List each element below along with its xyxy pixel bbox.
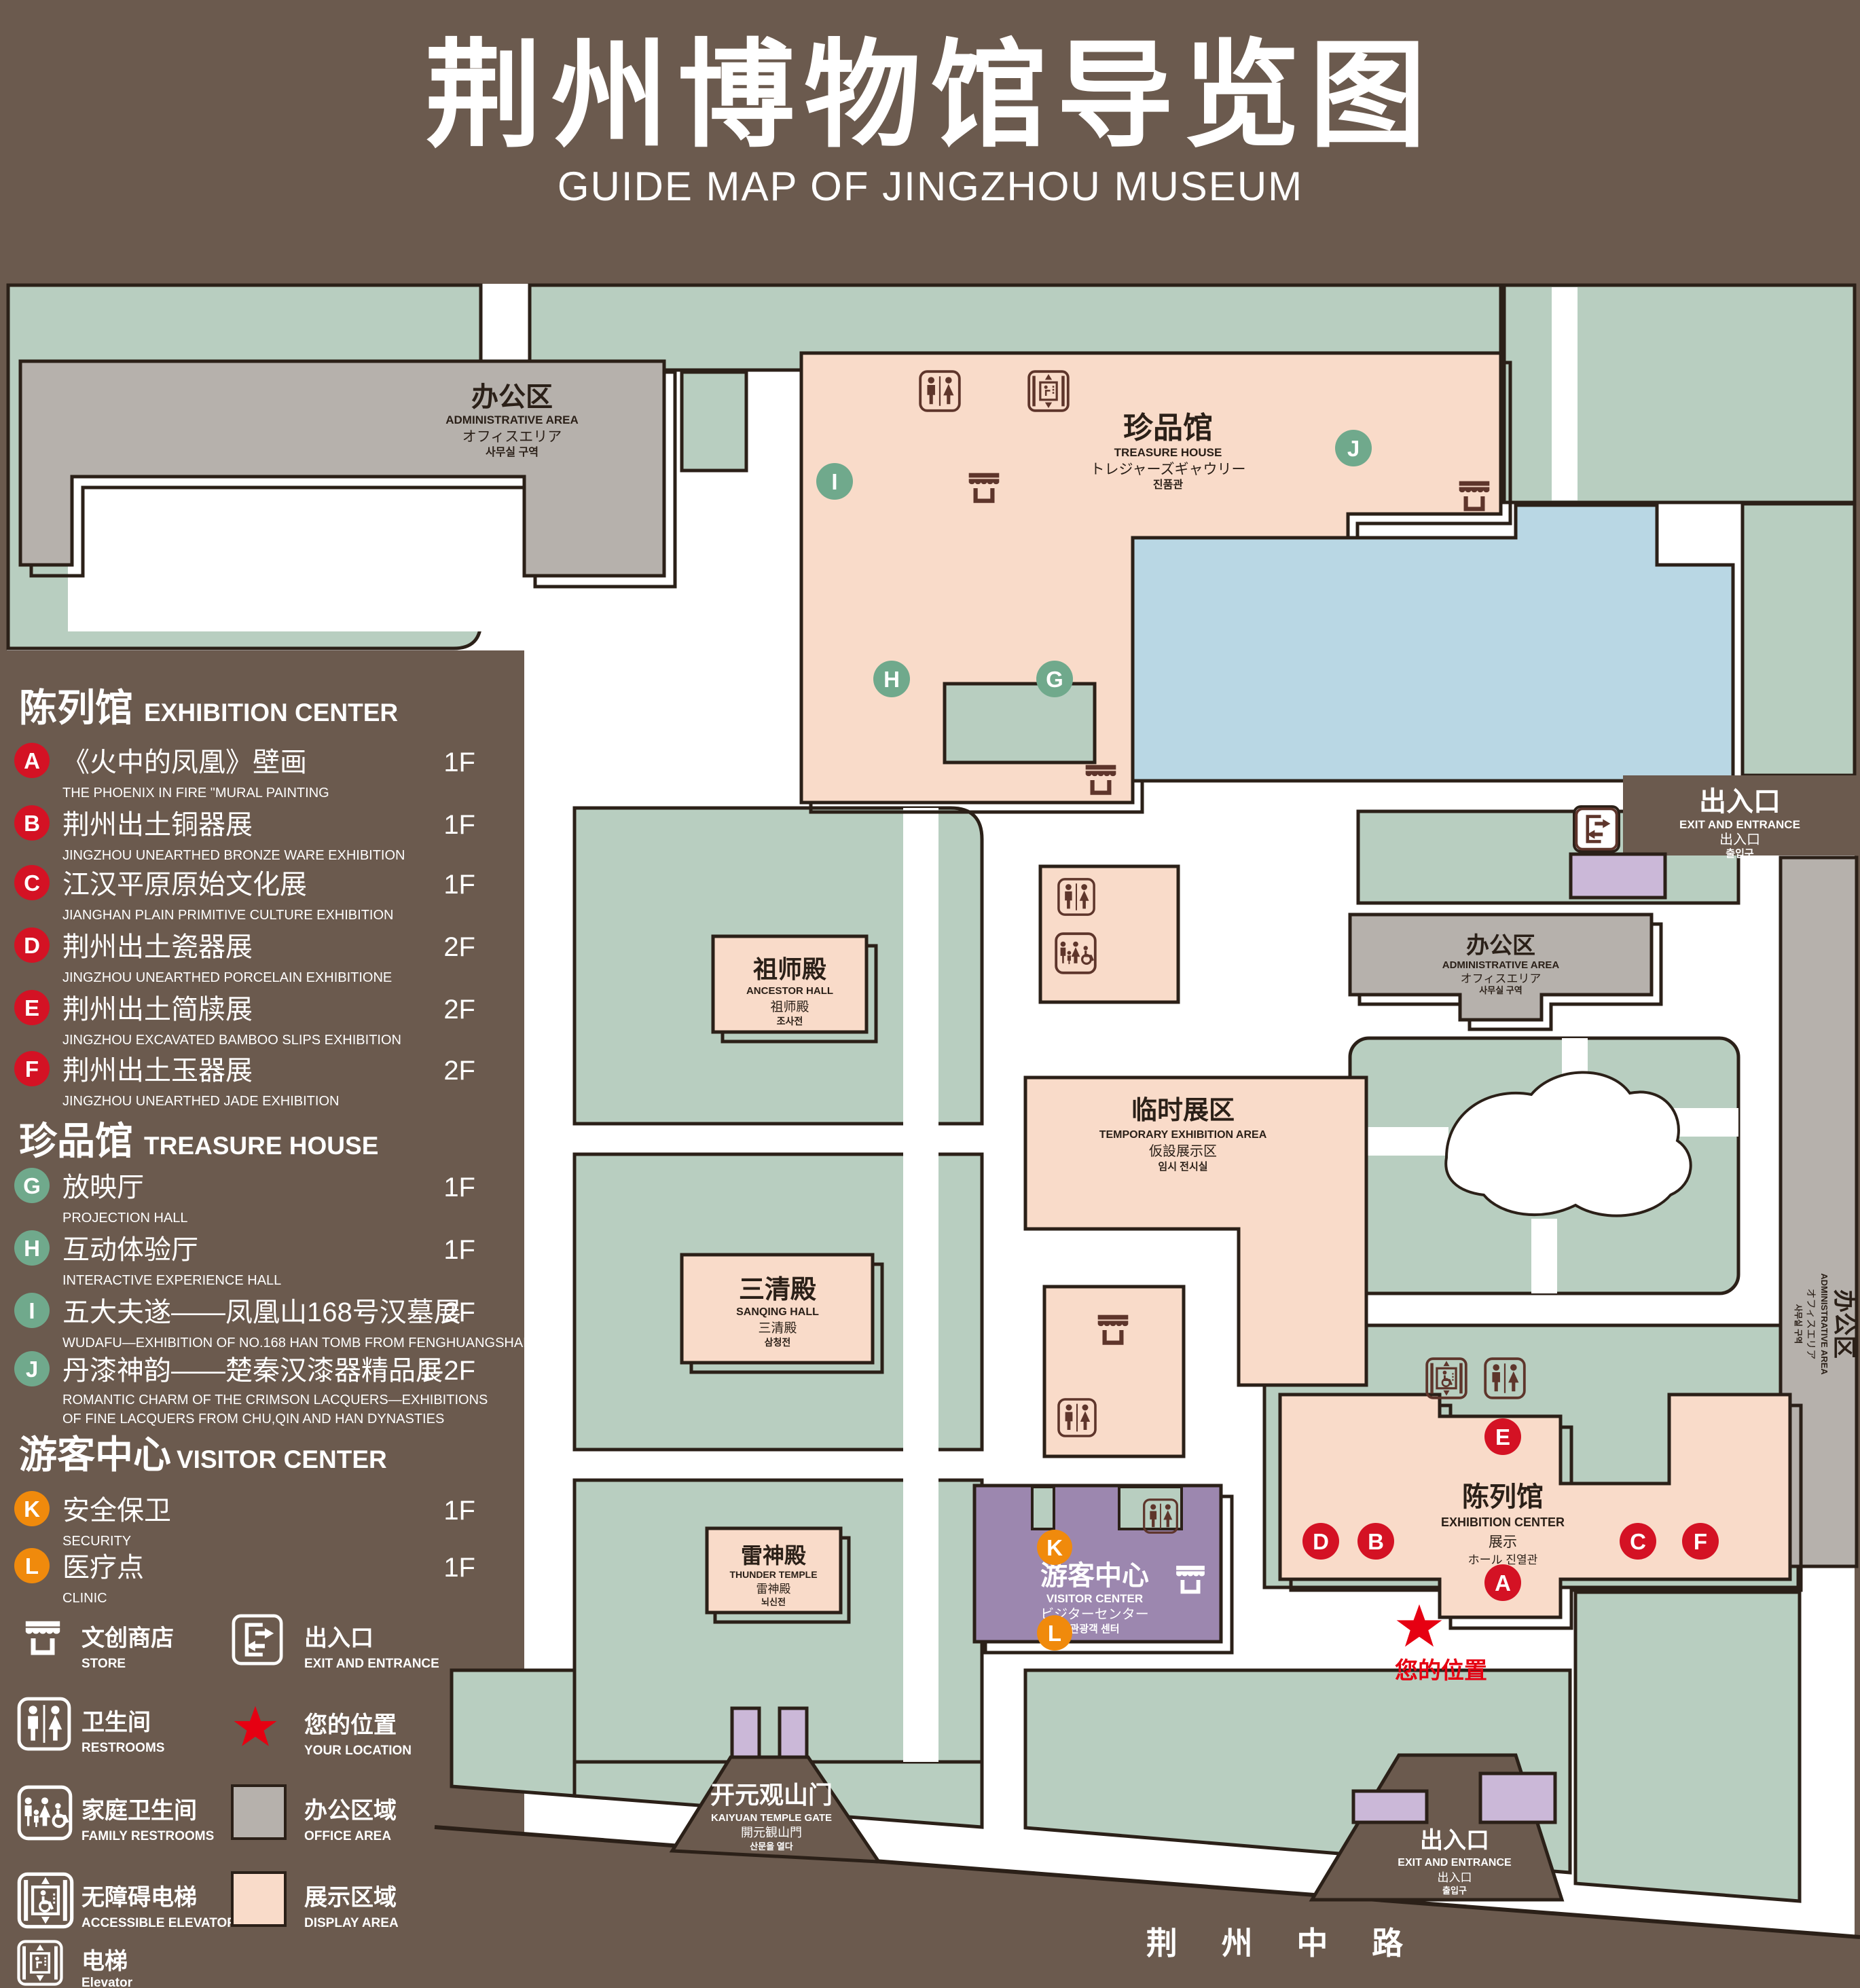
svg-text:B: B [1368, 1529, 1384, 1554]
sanqing-label-zh: 三清殿 [739, 1276, 816, 1304]
svg-text:WUDAFU—EXHIBITION OF NO.168 HA: WUDAFU—EXHIBITION OF NO.168 HAN TOMB FRO… [62, 1336, 533, 1350]
gate-pillar [732, 1708, 759, 1757]
legend-item-B: B 荆州出土铜器展 JINGZHOU UNEARTHED BRONZE WARE… [14, 805, 475, 863]
svg-text:F: F [25, 1056, 39, 1082]
svg-text:荆州出土瓷器展: 荆州出土瓷器展 [62, 932, 253, 962]
your-location-label: 您的位置 [1395, 1658, 1487, 1684]
svg-text:I: I [29, 1298, 35, 1323]
svg-text:2F: 2F [443, 995, 475, 1025]
svg-text:JINGZHOU EXCAVATED BAMBOO SLIP: JINGZHOU EXCAVATED BAMBOO SLIPS EXHIBITI… [62, 1033, 401, 1048]
svg-text:PROJECTION HALL: PROJECTION HALL [62, 1211, 187, 1226]
marker-A: A [1484, 1564, 1521, 1601]
legend-symbol-exit: 出入口 EXIT AND ENTRANCE [234, 1616, 439, 1671]
svg-text:THE PHOENIX IN FIRE "MURAL PAI: THE PHOENIX IN FIRE "MURAL PAINTING [62, 786, 329, 800]
svg-text:安全保卫: 安全保卫 [62, 1496, 171, 1526]
temporary-label-jp: 仮設展示区 [1149, 1143, 1217, 1159]
marker-L: L [1037, 1615, 1072, 1651]
svg-text:1F: 1F [443, 1235, 475, 1265]
sanqing-label-en: SANQING HALL [736, 1306, 819, 1318]
svg-text:放映厅: 放映厅 [62, 1173, 144, 1202]
svg-text:1F: 1F [443, 1173, 475, 1202]
admin-strip-label-zh: 办公区 [1831, 1289, 1857, 1359]
legend-section-treasure-en: TREASURE HOUSE [144, 1132, 378, 1160]
legend-symbol-elevator: 电梯 Elevator [19, 1942, 133, 1988]
treasure-label-zh: 珍品馆 [1123, 411, 1213, 445]
your-location-star-icon [234, 1706, 276, 1746]
svg-text:FAMILY RESTROOMS: FAMILY RESTROOMS [81, 1829, 214, 1843]
legend-item-I: I 五大夫遂——凤凰山168号汉墓展 WUDAFU—EXHIBITION OF … [14, 1293, 533, 1350]
admin-top-label-jp: オフィスエリア [462, 429, 562, 445]
legend-symbol-your-location: 您的位置 YOUR LOCATION [234, 1706, 412, 1758]
temporary-label-en: TEMPORARY EXHIBITION AREA [1099, 1129, 1267, 1141]
sanqing-label-kr: 삼청전 [765, 1337, 791, 1348]
svg-text:1-2F: 1-2F [420, 1356, 475, 1386]
marker-H: H [873, 661, 910, 697]
svg-text:G: G [23, 1173, 41, 1198]
lake [1133, 505, 1733, 781]
svg-text:RESTROOMS: RESTROOMS [81, 1741, 164, 1755]
svg-text:DISPLAY AREA: DISPLAY AREA [304, 1916, 399, 1930]
svg-text:电梯: 电梯 [81, 1949, 128, 1974]
svg-text:1F: 1F [443, 1496, 475, 1526]
legend-item-C: C 江汉平原原始文化展 JIANGHAN PLAIN PRIMITIVE CUL… [14, 865, 475, 923]
svg-text:《火中的凤凰》壁画: 《火中的凤凰》壁画 [62, 748, 307, 777]
svg-text:1F: 1F [443, 1553, 475, 1583]
legend-item-K: K 安全保卫 SECURITY 1F [14, 1491, 475, 1549]
legend-section-visitor-zh: 游客中心 [19, 1433, 171, 1476]
visitor-label-en: VISITOR CENTER [1046, 1592, 1143, 1605]
temporary-label-zh: 临时展区 [1131, 1097, 1235, 1125]
svg-text:展示区域: 展示区域 [304, 1885, 397, 1911]
svg-text:JIANGHAN PLAIN PRIMITIVE CULTU: JIANGHAN PLAIN PRIMITIVE CULTURE EXHIBIT… [62, 908, 393, 923]
courtyard-top-left [68, 468, 530, 631]
admin-top-label-en: ADMINISTRATIVE AREA [445, 413, 579, 426]
svg-text:Elevator: Elevator [81, 1976, 133, 1988]
treasure-label-kr: 진품관 [1153, 479, 1183, 491]
svg-text:丹漆神韵——楚秦汉漆器精品展: 丹漆神韵——楚秦汉漆器精品展 [62, 1356, 443, 1386]
svg-text:荆州出土简牍展: 荆州出土简牍展 [62, 995, 253, 1025]
ancestor-label-en: ANCESTOR HALL [746, 985, 833, 997]
ground-right-column [1743, 504, 1855, 775]
svg-text:JINGZHOU UNEARTHED JADE EXHIBI: JINGZHOU UNEARTHED JADE EXHIBITION [62, 1094, 339, 1109]
svg-text:2F: 2F [443, 1297, 475, 1327]
svg-text:荆州出土铜器展: 荆州出土铜器展 [62, 810, 253, 840]
svg-text:EXIT AND ENTRANCE: EXIT AND ENTRANCE [304, 1657, 439, 1671]
svg-text:J: J [26, 1357, 38, 1382]
exit-bottom-label-zh: 出入口 [1420, 1828, 1489, 1854]
sanqing-hall: 三清殿 SANQING HALL 三清殿 삼청전 [682, 1255, 882, 1372]
svg-text:D: D [1313, 1529, 1329, 1554]
legend-item-L: L 医疗点 CLINIC 1F [14, 1548, 475, 1606]
marker-F: F [1682, 1523, 1719, 1560]
ground-bottom-west [452, 1670, 575, 1796]
legend-item-A: A 《火中的凤凰》壁画 THE PHOENIX IN FIRE "MURAL P… [14, 743, 475, 800]
svg-text:STORE: STORE [81, 1657, 126, 1671]
exhibition-label-zh: 陈列馆 [1462, 1482, 1544, 1512]
sanqing-label-jp: 三清殿 [758, 1321, 797, 1336]
svg-text:互动体验厅: 互动体验厅 [62, 1235, 198, 1265]
svg-text:办公区域: 办公区域 [304, 1798, 397, 1824]
central-restroom-block [1040, 866, 1178, 1002]
admin-right-label-jp: オフィスエリア [1461, 972, 1542, 985]
marker-E: E [1484, 1418, 1521, 1455]
visitor-label-kr: 관광객 센터 [1070, 1623, 1119, 1635]
marker-D: D [1302, 1523, 1339, 1560]
marker-K: K [1037, 1530, 1072, 1565]
legend-item-F: F 荆州出土玉器展 JINGZHOU UNEARTHED JADE EXHIBI… [14, 1051, 475, 1109]
admin-right-label-zh: 办公区 [1466, 933, 1535, 959]
road-label: 荆 州 中 路 [1146, 1926, 1421, 1961]
ground-small-block [682, 372, 746, 471]
exit-top-label-kr: 출입구 [1726, 848, 1754, 860]
exit-bottom-label-kr: 출입구 [1442, 1885, 1467, 1896]
svg-text:2F: 2F [443, 1056, 475, 1086]
page-title-en: GUIDE MAP OF JINGZHOU MUSEUM [558, 164, 1303, 209]
marker-I: I [816, 463, 853, 500]
svg-text:F: F [1694, 1529, 1707, 1554]
svg-text:YOUR LOCATION: YOUR LOCATION [304, 1744, 412, 1758]
ancestor-label-jp: 祖师殿 [770, 999, 809, 1014]
admin-strip-label-kr: 사무실 구역 [1793, 1304, 1804, 1344]
ground-bottom-right [1575, 1592, 1800, 1901]
thunder-label-kr: 뇌신전 [761, 1597, 786, 1607]
svg-text:K: K [1046, 1535, 1063, 1560]
svg-text:ROMANTIC CHARM OF THE CRIMSON: ROMANTIC CHARM OF THE CRIMSON LACQUERS—E… [62, 1393, 488, 1407]
legend-symbol-accessible-elevator: 无障碍电梯 ACCESSIBLE ELEVATOR [19, 1874, 236, 1930]
legend-symbol-store: 文创商店 STORE [26, 1621, 174, 1671]
legend-item-D: D 荆州出土瓷器展 JINGZHOU UNEARTHED PORCELAIN E… [14, 927, 475, 985]
legend-section-exhibition-zh: 陈列馆 [19, 686, 133, 729]
accessible-elevator-icon [1427, 1359, 1466, 1398]
legend-swatch-display-area: 展示区域 DISPLAY AREA [232, 1873, 399, 1930]
legend-item-E: E 荆州出土简牍展 JINGZHOU EXCAVATED BAMBOO SLIP… [14, 990, 475, 1048]
ancestor-label-zh: 祖师殿 [753, 955, 826, 983]
legend-item-J: J 丹漆神韵——楚秦汉漆器精品展 ROMANTIC CHARM OF THE C… [14, 1351, 488, 1426]
visitor-center-building: 游客中心 VISITOR CENTER ビジターセンター 관광객 센터 [974, 1486, 1232, 1653]
svg-text:I: I [831, 469, 837, 494]
treasure-label-en: TREASURE HOUSE [1114, 446, 1222, 459]
svg-text:出入口: 出入口 [304, 1625, 373, 1651]
marker-C: C [1620, 1523, 1656, 1560]
guide-map-poster: 荆州博物馆导览图 GUIDE MAP OF JINGZHOU MUSEUM [0, 0, 1860, 1988]
svg-text:A: A [24, 748, 40, 773]
svg-text:CLINIC: CLINIC [62, 1591, 107, 1606]
path-central [903, 808, 938, 1762]
gate-pillar [780, 1708, 807, 1757]
svg-text:K: K [24, 1496, 40, 1522]
admin-right-label-en: ADMINISTRATIVE AREA [1442, 959, 1560, 971]
svg-text:L: L [1048, 1621, 1061, 1646]
gate-label-jp: 開元観山門 [741, 1826, 802, 1839]
marker-J: J [1335, 430, 1372, 466]
thunder-label-zh: 雷神殿 [741, 1543, 806, 1568]
legend-symbol-family-restrooms: 家庭卫生间 FAMILY RESTROOMS [19, 1787, 214, 1843]
svg-text:文创商店: 文创商店 [81, 1625, 174, 1651]
svg-text:卫生间: 卫生间 [81, 1710, 151, 1735]
svg-text:OF FINE LACQUERS FROM CHU,QIN: OF FINE LACQUERS FROM CHU,QIN AND HAN DY… [62, 1412, 444, 1426]
svg-text:J: J [1347, 436, 1360, 461]
temporary-label-kr: 임시 전시실 [1158, 1161, 1207, 1173]
svg-text:2F: 2F [443, 932, 475, 962]
treasure-label-jp: トレジャーズギャウリー [1091, 462, 1246, 477]
svg-text:D: D [24, 933, 40, 958]
svg-text:E: E [24, 995, 39, 1020]
exit-top-label-jp: 出入口 [1719, 832, 1760, 847]
svg-text:家庭卫生间: 家庭卫生间 [81, 1797, 197, 1824]
marker-B: B [1357, 1523, 1394, 1560]
thunder-label-en: THUNDER TEMPLE [729, 1569, 817, 1580]
svg-text:荆州出土玉器展: 荆州出土玉器展 [62, 1056, 253, 1086]
legend-section-visitor-en: VISITOR CENTER [177, 1446, 387, 1473]
svg-text:1F: 1F [443, 748, 475, 777]
svg-text:江汉平原原始文化展: 江汉平原原始文化展 [62, 870, 307, 900]
svg-text:您的位置: 您的位置 [304, 1712, 397, 1738]
exhibition-label-jp: 展示 [1489, 1534, 1517, 1550]
elevator-icon [1029, 371, 1068, 411]
svg-text:H: H [24, 1236, 40, 1261]
svg-text:INTERACTIVE EXPERIENCE HALL: INTERACTIVE EXPERIENCE HALL [62, 1273, 281, 1288]
legend-section-treasure-zh: 珍品馆 [19, 1120, 133, 1162]
svg-text:G: G [1046, 667, 1063, 692]
legend-item-H: H 互动体验厅 INTERACTIVE EXPERIENCE HALL 1F [14, 1230, 475, 1288]
svg-text:C: C [1630, 1529, 1646, 1554]
exit-top-label-en: EXIT AND ENTRANCE [1679, 818, 1800, 831]
exit-top-label-zh: 出入口 [1699, 787, 1781, 817]
svg-text:1F: 1F [443, 870, 475, 900]
svg-text:JINGZHOU UNEARTHED BRONZE WARE: JINGZHOU UNEARTHED BRONZE WARE EXHIBITIO… [62, 848, 405, 863]
treasure-courtyard-green [945, 684, 1095, 762]
svg-text:H: H [883, 667, 900, 692]
admin-strip-right: 办公区 ADMINISTRATIVE AREA オフィスエリア 사무실 구역 [1781, 858, 1857, 1566]
svg-text:OFFICE AREA: OFFICE AREA [304, 1829, 391, 1843]
svg-text:B: B [24, 811, 40, 836]
svg-text:SECURITY: SECURITY [62, 1534, 131, 1549]
svg-text:五大夫遂——凤凰山168号汉墓展: 五大夫遂——凤凰山168号汉墓展 [62, 1297, 461, 1327]
svg-text:A: A [1495, 1570, 1511, 1596]
exit-bottom-label-en: EXIT AND ENTRANCE [1398, 1857, 1512, 1869]
svg-text:医疗点: 医疗点 [62, 1553, 144, 1583]
exit-bottom-structure [1480, 1773, 1555, 1822]
gate-label-kr: 산문을 열다 [750, 1841, 792, 1852]
legend-section-exhibition-en: EXHIBITION CENTER [144, 699, 398, 726]
legend-symbol-restrooms: 卫生间 RESTROOMS [19, 1699, 164, 1755]
exhibition-label-en: EXHIBITION CENTER [1441, 1515, 1565, 1529]
admin-top-label-zh: 办公区 [471, 382, 553, 412]
page-title-zh: 荆州博物馆导览图 [425, 31, 1436, 161]
admin-top-label-kr: 사무실 구역 [486, 446, 539, 458]
svg-text:1F: 1F [443, 810, 475, 840]
ancestor-label-kr: 조사전 [777, 1016, 803, 1027]
svg-text:ACCESSIBLE ELEVATOR: ACCESSIBLE ELEVATOR [81, 1916, 236, 1930]
gate-label-en: KAIYUAN TEMPLE GATE [711, 1812, 832, 1824]
svg-text:无障碍电梯: 无障碍电梯 [81, 1885, 197, 1911]
ancestor-hall: 祖师殿 ANCESTOR HALL 祖师殿 조사전 [713, 936, 876, 1042]
exit-top-structure [1571, 854, 1665, 898]
admin-right-label-kr: 사무실 구역 [1479, 985, 1522, 995]
thunder-label-jp: 雷神殿 [756, 1583, 791, 1596]
admin-strip-label-jp: オフィスエリア [1805, 1289, 1817, 1360]
exit-bottom-structure [1353, 1791, 1427, 1822]
legend-item-G: G 放映厅 PROJECTION HALL 1F [14, 1168, 475, 1226]
admin-strip-label-en: ADMINISTRATIVE AREA [1819, 1273, 1829, 1375]
svg-text:JINGZHOU UNEARTHED PORCELAIN E: JINGZHOU UNEARTHED PORCELAIN EXHIBITIONE [62, 970, 392, 985]
legend-swatch-office-area: 办公区域 OFFICE AREA [232, 1786, 397, 1843]
legend: 陈列馆 EXHIBITION CENTER A 《火中的凤凰》壁画 THE PH… [14, 686, 533, 1988]
svg-text:E: E [1495, 1424, 1510, 1450]
exit-bottom-label-jp: 出入口 [1438, 1871, 1472, 1884]
svg-text:L: L [25, 1553, 39, 1579]
gate-label-zh: 开元观山门 [710, 1781, 833, 1809]
thunder-temple: 雷神殿 THUNDER TEMPLE 雷神殿 뇌신전 [707, 1528, 849, 1622]
svg-text:C: C [24, 870, 40, 896]
marker-G: G [1036, 661, 1073, 697]
visitor-label-zh: 游客中心 [1040, 1561, 1149, 1591]
map-canvas: 荆州博物馆导览图 GUIDE MAP OF JINGZHOU MUSEUM [0, 0, 1860, 1988]
